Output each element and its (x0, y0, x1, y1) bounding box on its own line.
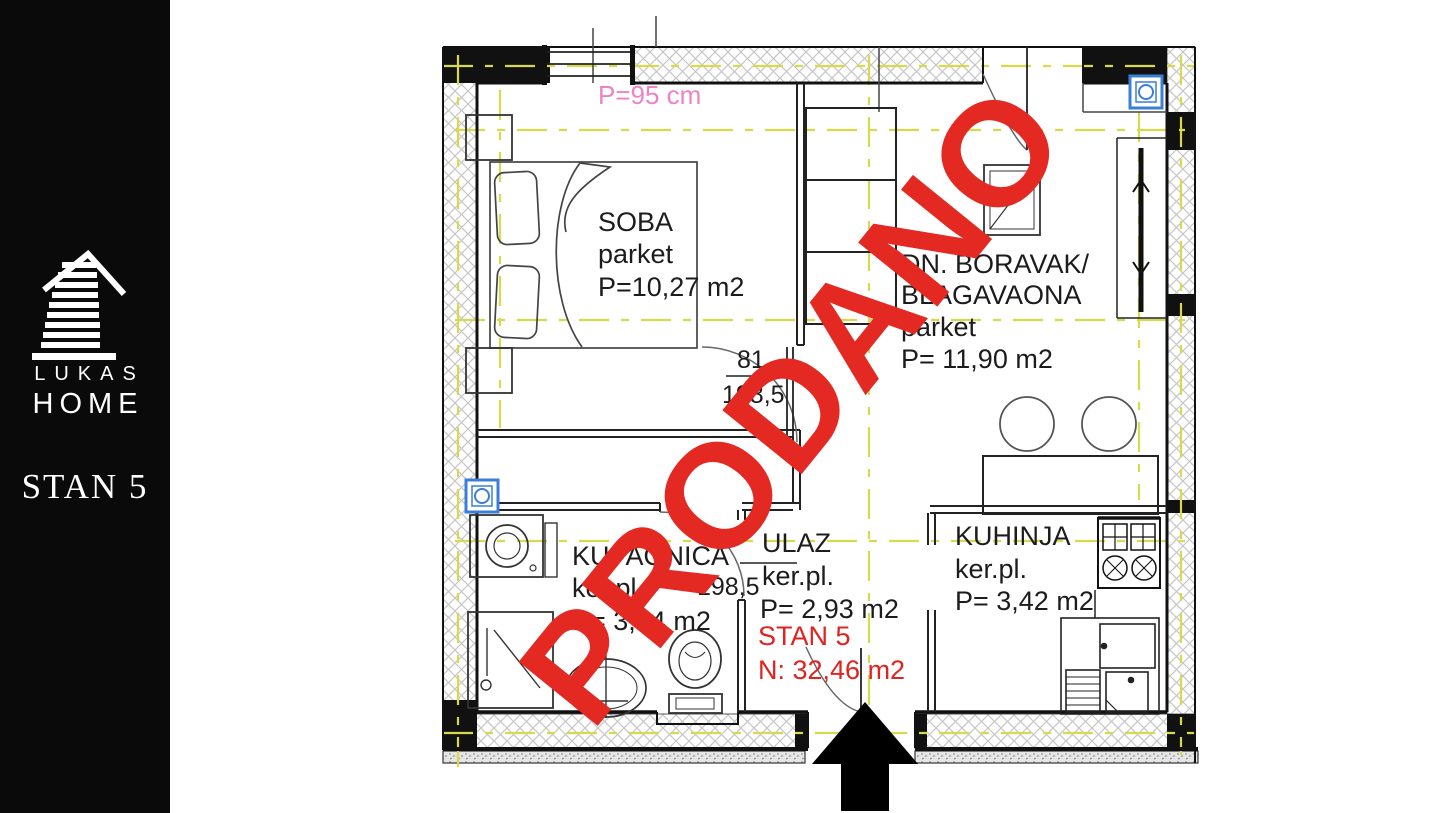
apartment-label: STAN 5 (758, 621, 851, 651)
slide: LUKAS HOME STAN 5 (0, 0, 1445, 813)
soba-label: SOBA parket P=10,27 m2 (598, 207, 744, 302)
washing-machine (470, 515, 557, 577)
kupaonica-floor: ker.pl. (572, 573, 644, 603)
floor-plan: 81 198,5 198,5 P=95 cm SOBA parket P=10,… (0, 0, 1445, 813)
boravak-area: P= 11,90 m2 (901, 344, 1053, 374)
window-width-label: P=95 cm (598, 80, 701, 110)
utility-icon-bathroom (466, 480, 498, 512)
kuhinja-area: P= 3,42 m2 (955, 586, 1094, 616)
boravak-name-1: DN. BORAVAK/ (901, 249, 1090, 279)
kupaonica-door-height-label: 198,5 (697, 573, 760, 601)
wardrobe (806, 108, 896, 324)
soba-floor: parket (598, 239, 674, 269)
apartment-net-area: N: 32,46 m2 (758, 655, 905, 685)
ulaz-label: ULAZ ker.pl. P= 2,93 m2 (760, 528, 899, 624)
stool-right (1082, 397, 1136, 451)
dining-table (983, 397, 1158, 514)
stove (1098, 518, 1160, 588)
kupaonica-area: P= 3,94 m2 (572, 606, 711, 636)
boravak-name-2: BLAGAVAONA (901, 280, 1082, 310)
soba-area: P=10,27 m2 (598, 272, 744, 302)
soba-door-height-label: 198,5 (722, 381, 785, 409)
toilet (669, 630, 722, 713)
bathroom-sink (566, 655, 646, 718)
apartment-summary: STAN 5 N: 32,46 m2 (758, 621, 905, 685)
kitchen-corner-unit (1061, 618, 1159, 714)
ulaz-name: ULAZ (762, 528, 831, 558)
stool-left (1000, 397, 1054, 451)
radiator (1133, 148, 1149, 312)
kuhinja-name: KUHINJA (955, 521, 1071, 551)
ulaz-floor: ker.pl. (762, 561, 834, 591)
shower (468, 612, 553, 708)
entrance-arrow-icon (812, 702, 918, 811)
boravak-label: DN. BORAVAK/ BLAGAVAONA parket P= 11,90 … (901, 249, 1090, 374)
soba-door-width-label: 81 (737, 346, 765, 374)
boravak-floor: parket (901, 312, 977, 342)
kuhinja-label: KUHINJA ker.pl. P= 3,42 m2 (955, 521, 1094, 616)
soba-door-dimension: 81 198,5 (722, 346, 812, 409)
utility-icon-livingroom (1130, 76, 1162, 108)
soba-name: SOBA (598, 207, 673, 237)
balcony-door (984, 165, 1040, 235)
kuhinja-floor: ker.pl. (955, 554, 1027, 584)
kupaonica-name: KUPAONICA (572, 541, 729, 571)
ulaz-area: P= 2,93 m2 (760, 594, 899, 624)
